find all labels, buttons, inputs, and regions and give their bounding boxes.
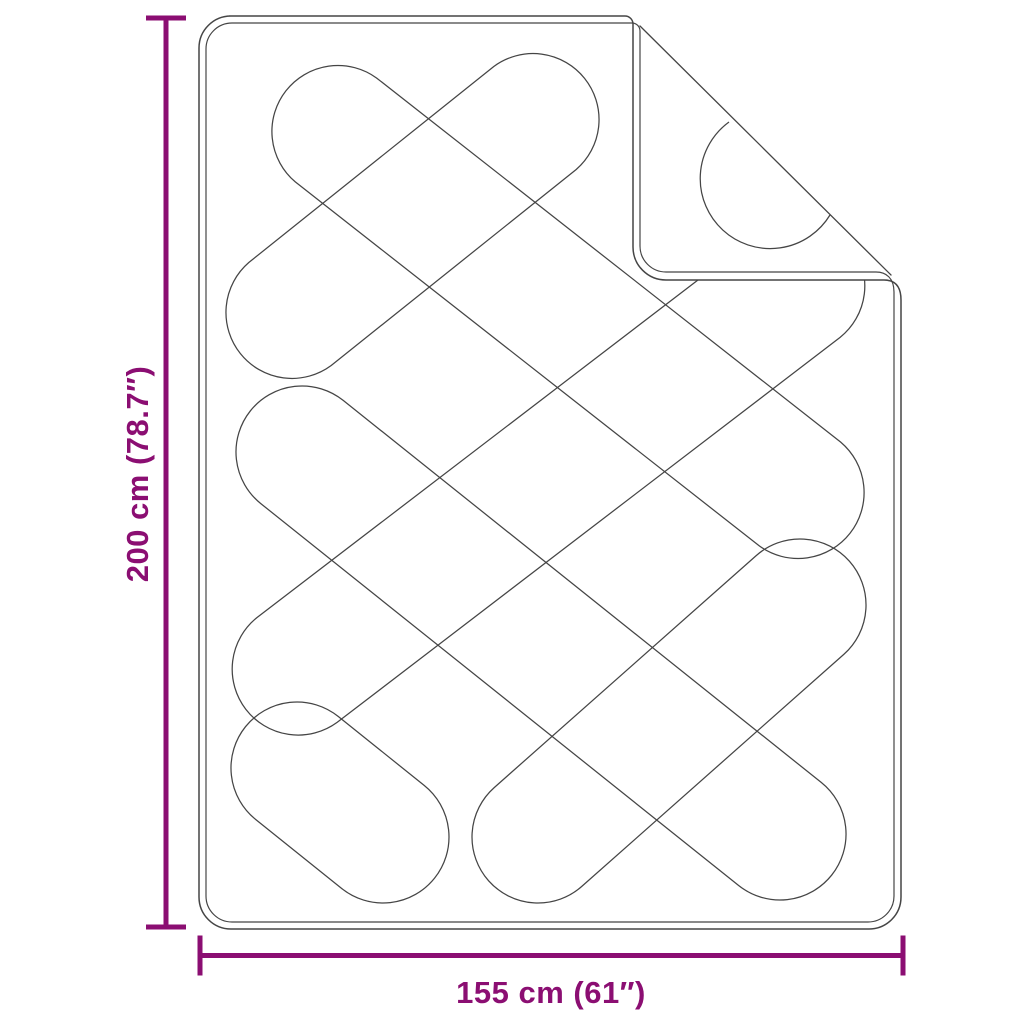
- width-dimension: 155 cm (61″): [200, 936, 903, 1011]
- blanket-body-fill: [199, 16, 901, 929]
- fold-flap-fill: [633, 24, 894, 280]
- diagram-canvas: 200 cm (78.7″) 155 cm (61″): [0, 0, 1024, 1024]
- height-dimension: 200 cm (78.7″): [120, 18, 186, 927]
- width-dimension-label: 155 cm (61″): [456, 975, 646, 1010]
- height-dimension-label: 200 cm (78.7″): [120, 366, 155, 583]
- product-dimension-diagram: 200 cm (78.7″) 155 cm (61″): [0, 0, 1024, 1024]
